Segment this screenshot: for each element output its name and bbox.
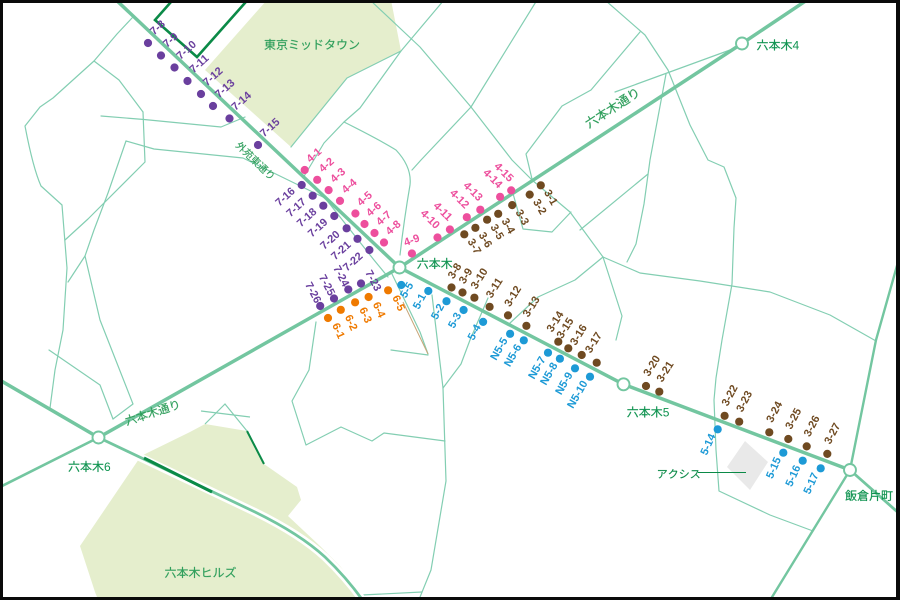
svg-text:6: 6 [104,460,111,474]
svg-text:4: 4 [793,39,800,53]
svg-text:5: 5 [663,406,670,420]
